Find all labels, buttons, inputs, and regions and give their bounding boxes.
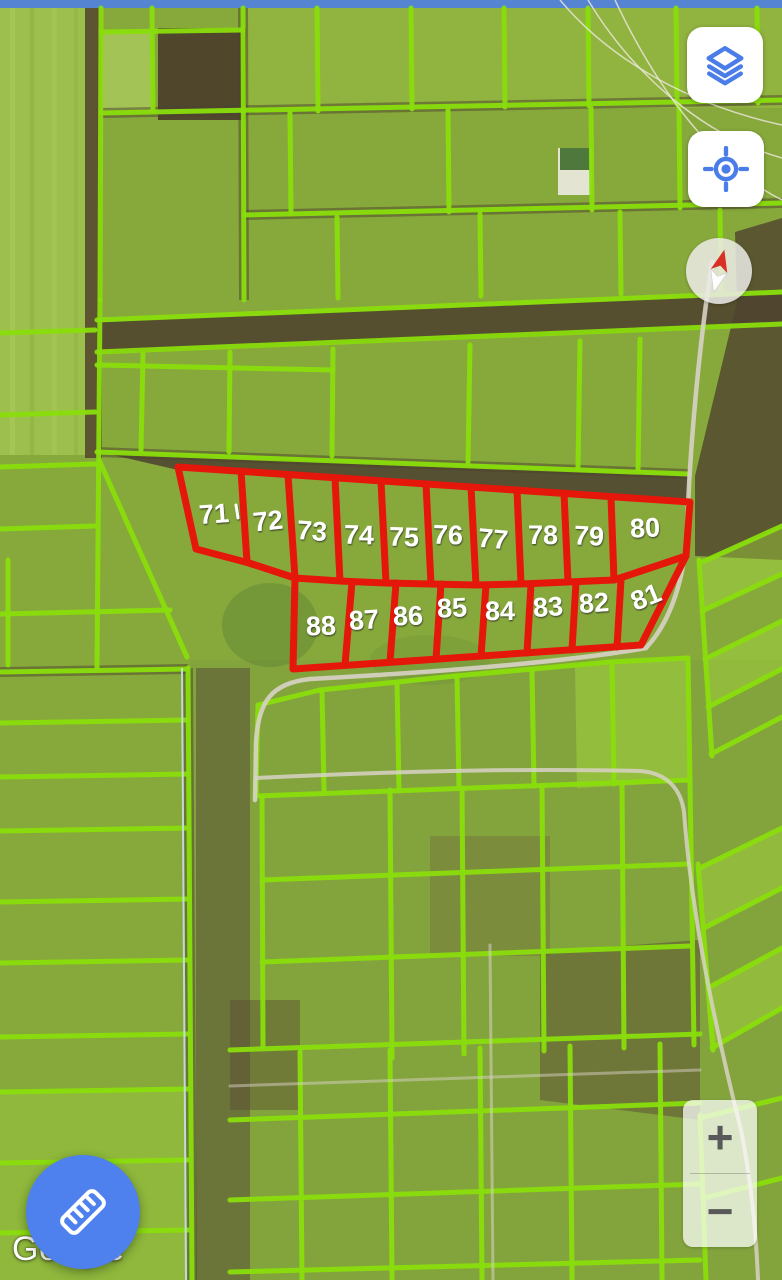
svg-text:85: 85	[436, 592, 468, 624]
svg-text:76: 76	[432, 519, 463, 550]
svg-text:74: 74	[343, 519, 374, 550]
svg-text:72: 72	[251, 505, 284, 538]
svg-text:78: 78	[528, 520, 558, 550]
zoom-controls: + −	[683, 1100, 757, 1247]
svg-text:75: 75	[388, 521, 419, 552]
svg-text:84: 84	[485, 596, 515, 626]
svg-text:88: 88	[305, 610, 336, 641]
my-location-icon	[703, 146, 749, 192]
svg-text:82: 82	[578, 587, 610, 619]
svg-text:77: 77	[477, 523, 510, 556]
svg-text:86: 86	[392, 600, 423, 631]
measure-button[interactable]	[26, 1155, 140, 1269]
my-location-button[interactable]	[688, 131, 764, 207]
zoom-out-button[interactable]: −	[683, 1174, 757, 1247]
compass-needle-icon	[691, 243, 747, 299]
map-canvas[interactable]: 717273747576777879808182838485868788	[0, 0, 782, 1280]
svg-text:73: 73	[296, 515, 328, 547]
compass-button[interactable]	[686, 238, 752, 304]
svg-text:83: 83	[532, 591, 564, 623]
svg-text:71: 71	[198, 498, 230, 530]
layers-icon	[702, 42, 748, 88]
svg-text:79: 79	[573, 520, 605, 552]
ruler-icon	[51, 1180, 115, 1244]
svg-text:80: 80	[629, 512, 661, 544]
svg-text:87: 87	[348, 604, 380, 636]
satellite-map[interactable]: 717273747576777879808182838485868788	[0, 0, 782, 1280]
zoom-in-button[interactable]: +	[683, 1100, 757, 1173]
layers-button[interactable]	[687, 27, 763, 103]
